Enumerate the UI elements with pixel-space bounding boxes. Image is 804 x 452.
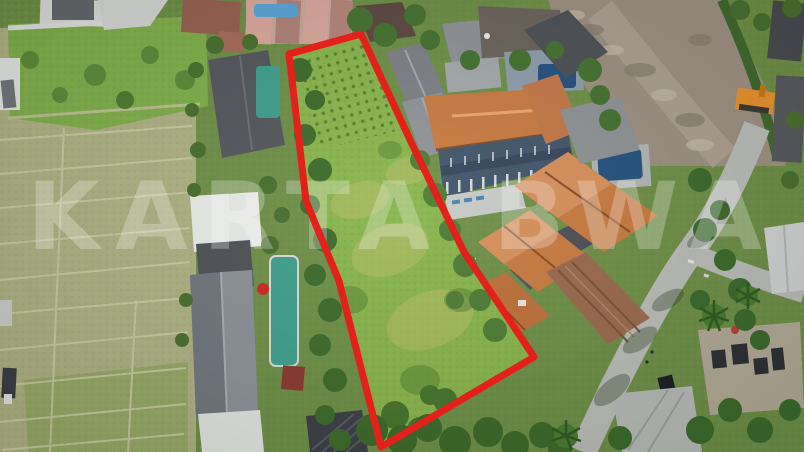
scene-layer	[0, 0, 804, 452]
pink-roof-villas	[245, 0, 353, 45]
red-umbrella	[257, 283, 269, 295]
gazebo-roof	[281, 365, 305, 391]
aerial-photo: KARTA BWA	[0, 0, 804, 452]
